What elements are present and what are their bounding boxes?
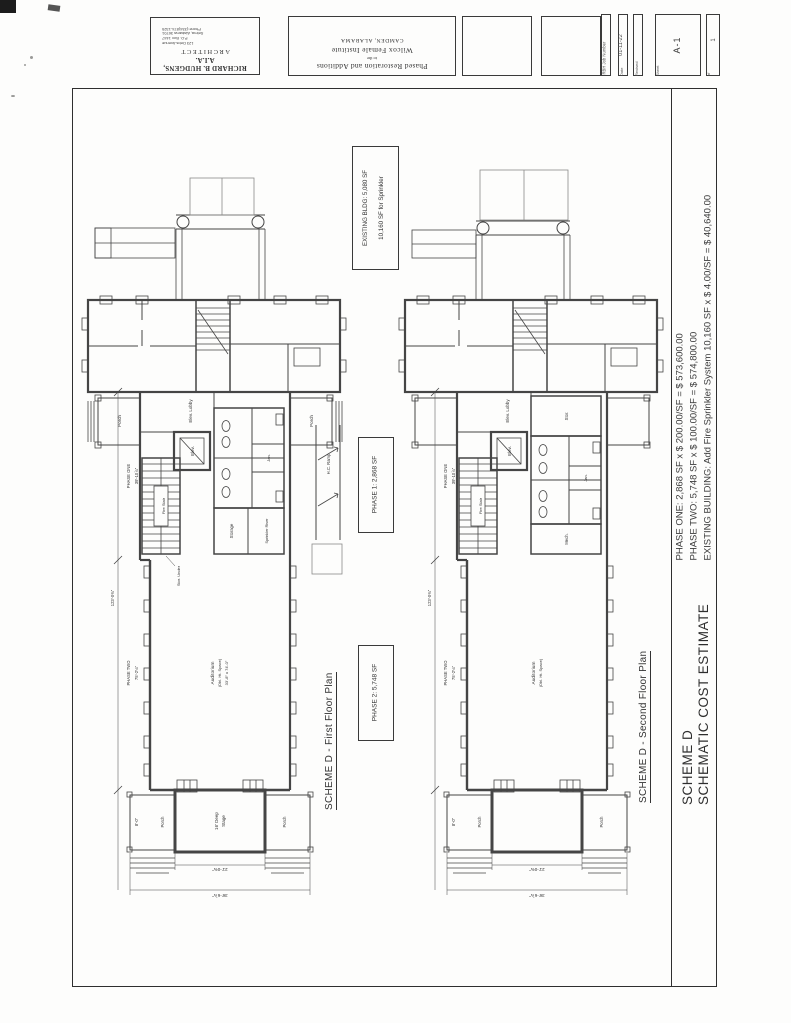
existing-bldg-note-line1: EXISTING BLDG: 5,080 SF	[362, 148, 370, 268]
title-column-divider	[671, 88, 672, 987]
sf-phase-two-dim-label: PHASE TWO	[443, 660, 448, 686]
sf-stor-label: Stor.	[564, 412, 569, 421]
ff-porch-bl-label: Porch	[160, 816, 165, 828]
scan-speck	[11, 95, 15, 97]
sf-stage-width-dim: 21'-0⅜"	[529, 867, 545, 872]
ff-porch-br-label: Porch	[282, 816, 287, 828]
sf-fire-stair-label: Fire Stair	[478, 497, 483, 514]
project-name-line2: to the	[291, 56, 453, 61]
sf-overall-width-dim: 36'-6⅞"	[529, 893, 545, 898]
sf-phase-one-dim-label: PHASE ONE	[443, 464, 448, 489]
phase1-note: PHASE 1: 2,868 SF	[372, 435, 381, 535]
ff-phase-two-dim-value: 75'-2⅛"	[134, 665, 139, 680]
existing-bldg-note-line2: 10,160 SF for Sprinkler	[378, 148, 386, 268]
sf-elev-label: Elev.	[507, 446, 512, 456]
ff-stage-label-line2: Stage	[221, 815, 226, 827]
ff-existing-building	[82, 296, 346, 392]
ff-phase-one-dim-label: PHASE ONE	[126, 464, 131, 489]
ff-stage-width-dim: 21'-0⅜"	[212, 867, 228, 872]
existing-bldg-note-box	[352, 146, 399, 270]
sf-jan-label: Jan.	[583, 474, 588, 482]
job-number-label: RBH Job Number	[602, 15, 611, 75]
ff-elev-lobby-label: Elev. Lobby	[188, 399, 193, 423]
ff-storage-label: Storage	[229, 523, 234, 538]
scheme-title: SCHEME D	[680, 595, 696, 805]
sf-phase-two-dim-value: 75'-2⅛"	[451, 665, 456, 680]
scheme-subtitle: SCHEMATIC COST ESTIMATE	[696, 595, 712, 805]
sheet-number: A-1	[672, 15, 684, 75]
title-block-empty-box-1	[462, 16, 532, 76]
ff-portico	[95, 178, 265, 300]
first-floor-plan: Porch Porch Elev. Lobby Elev. Fire Stair…	[78, 108, 348, 938]
sf-elev-lobby-label: Elev. Lobby	[505, 399, 510, 423]
sf-dimension-labels: PHASE ONE 39'-10⅞" 123'-0⅜" PHASE TWO 75…	[427, 464, 545, 898]
ff-phase-two-dim-label: PHASE TWO	[126, 660, 131, 686]
cost-line-phase-two: PHASE TWO: 5,748 SF x $ 100.00/SF = $ 57…	[689, 141, 700, 561]
architect-address-line: Phone:(334)874-1325	[162, 26, 256, 31]
ff-phase1-addition	[88, 392, 342, 790]
revised-label: Revised	[634, 16, 642, 76]
sf-phase-one-dim-value: 39'-10⅞"	[451, 467, 456, 484]
sf-overall-dim: 123'-0⅜"	[427, 589, 432, 606]
phase2-note: PHASE 2: 5,748 SF	[372, 643, 381, 743]
ff-overall-width-dim: 36'-6⅞"	[212, 893, 228, 898]
ff-porch-depth-dim: 8'-0"	[134, 817, 139, 826]
ff-dimension-labels: PHASE ONE 39'-10⅞" 123'-0⅜" PHASE TWO 75…	[110, 464, 228, 898]
ff-porch-left-label: Porch	[117, 415, 122, 427]
ff-phase-one-dim-value: 39'-10⅞"	[134, 467, 139, 484]
scan-corner-mark	[0, 0, 16, 13]
ff-porch-right-label: Porch	[309, 415, 314, 427]
architect-title: ARCHITECT	[154, 48, 256, 55]
ff-hc-ramp-label: H.C. Ramp	[326, 453, 331, 474]
sf-porch-depth-dim: 8'-0"	[451, 817, 456, 826]
date-value: 01-11-22	[618, 15, 628, 75]
sf-room-labels: Elev. Lobby Elev. Fire Stair Stor. Jan. …	[477, 399, 604, 828]
ff-sprinkler-riser-label: Sprinkler Riser	[265, 518, 269, 544]
project-name-line3: Wilcox Female Institute	[291, 46, 453, 55]
title-block-empty-box-2	[541, 16, 601, 76]
ff-auditorium-label: Auditorium	[210, 662, 216, 685]
sf-existing-building	[399, 296, 663, 392]
scan-speck	[24, 64, 26, 66]
ff-fire-stair-label: Fire Stair	[161, 497, 166, 514]
ff-overall-dim: 123'-0⅜"	[110, 589, 115, 606]
cost-line-existing-building: EXISTING BUILDING: Add Fire Sprinkler Sy…	[703, 141, 714, 561]
sheet-label: Sheet	[655, 16, 663, 76]
cost-line-phase-one: PHASE ONE: 2,868 SF x $ 200.00/SF = $ 57…	[675, 141, 686, 561]
architect-name: RICHARD B. HUDGENS, A.I.A.	[154, 56, 256, 72]
sf-porch-bl-label: Porch	[477, 816, 482, 828]
project-name-line1: Phased Restoration and Additions	[291, 62, 453, 71]
ff-auditorium-size-label: 33'-8" x 74'-0"	[224, 660, 229, 685]
architect-address-line: P.O. Box 1447	[162, 35, 256, 40]
ff-elev-label: Elev.	[190, 446, 195, 456]
ff-stage-label-line1: 16' Deep	[214, 812, 219, 830]
scan-speck	[30, 56, 33, 59]
sf-mech-label: Mech.	[564, 533, 569, 544]
project-location: CAMDEN, ALABAMA	[291, 37, 453, 43]
sf-auditorium-sub-label: (Dbl. Ht. Space)	[538, 658, 543, 687]
sf-auditorium-label: Auditorium	[531, 662, 537, 685]
scheme-title-block: SCHEME D SCHEMATIC COST ESTIMATE	[680, 595, 714, 805]
sheet-of-value: 1	[711, 10, 719, 70]
sf-phase1-addition	[412, 392, 650, 790]
drawing-sheet: RICHARD B. HUDGENS, A.I.A. ARCHITECT 123…	[0, 0, 791, 1023]
second-floor-plan: Elev. Lobby Elev. Fire Stair Stor. Jan. …	[395, 108, 665, 938]
architect-stamp-box: RICHARD B. HUDGENS, A.I.A. ARCHITECT 123…	[150, 17, 260, 75]
sf-porch-br-label: Porch	[599, 816, 604, 828]
project-title-box: Phased Restoration and Additions to the …	[288, 16, 456, 76]
ff-auditorium-sub-label: (Dbl. Ht. Space)	[217, 658, 222, 687]
ff-jan-label: Jan.	[266, 454, 271, 462]
ff-stor-under-label: Stor. Under	[176, 565, 181, 586]
sf-portico	[412, 170, 570, 300]
scan-smudge	[48, 4, 61, 12]
